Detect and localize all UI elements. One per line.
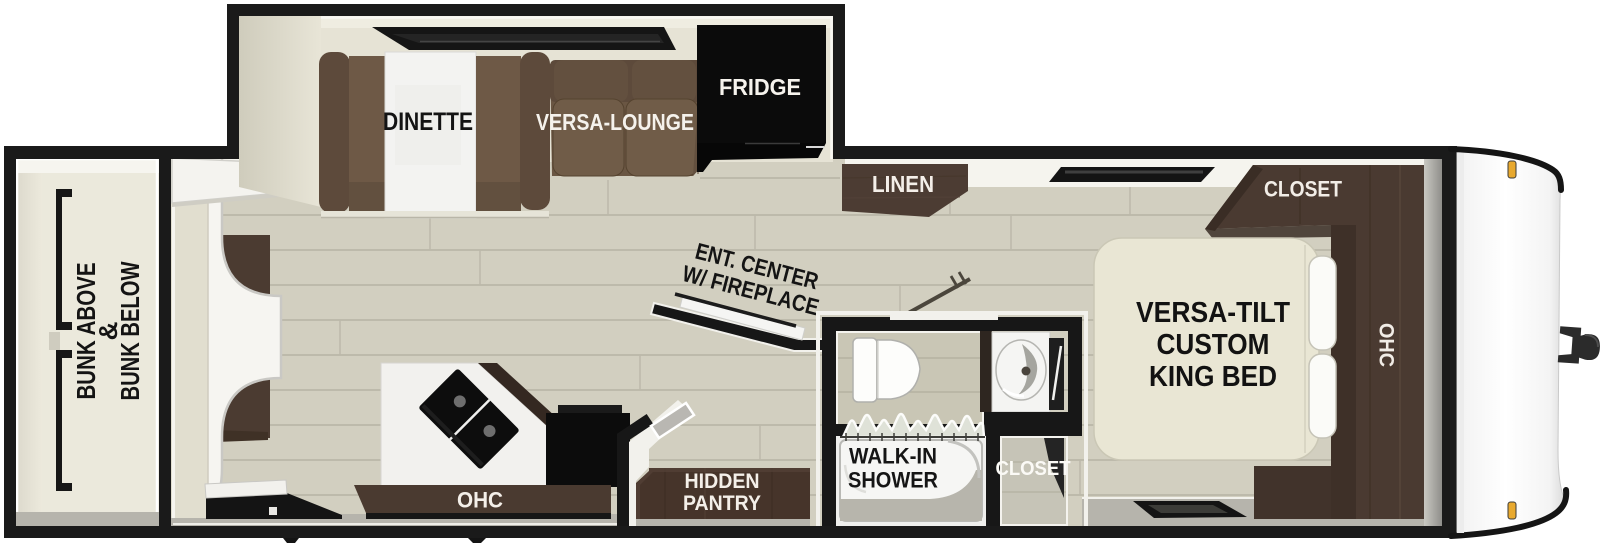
svg-text:BUNK BELOW: BUNK BELOW	[115, 261, 145, 400]
svg-text:HIDDEN: HIDDEN	[685, 469, 760, 493]
svg-text:PANTRY: PANTRY	[683, 491, 761, 515]
svg-text:VERSA-TILT: VERSA-TILT	[1136, 297, 1291, 329]
svg-text:VERSA-LOUNGE: VERSA-LOUNGE	[536, 109, 694, 135]
svg-text:LINEN: LINEN	[872, 171, 934, 197]
svg-text:CUSTOM: CUSTOM	[1157, 329, 1270, 361]
svg-text:WALK-IN: WALK-IN	[849, 444, 937, 469]
svg-text:KING BED: KING BED	[1149, 361, 1277, 393]
svg-text:DINETTE: DINETTE	[383, 108, 473, 136]
svg-text:FRIDGE: FRIDGE	[719, 74, 801, 100]
svg-text:OHC: OHC	[1375, 323, 1398, 367]
svg-text:CLOSET: CLOSET	[996, 458, 1071, 480]
svg-text:OHC: OHC	[457, 488, 503, 513]
svg-text:SHOWER: SHOWER	[848, 468, 938, 493]
svg-text:CLOSET: CLOSET	[1264, 177, 1342, 202]
